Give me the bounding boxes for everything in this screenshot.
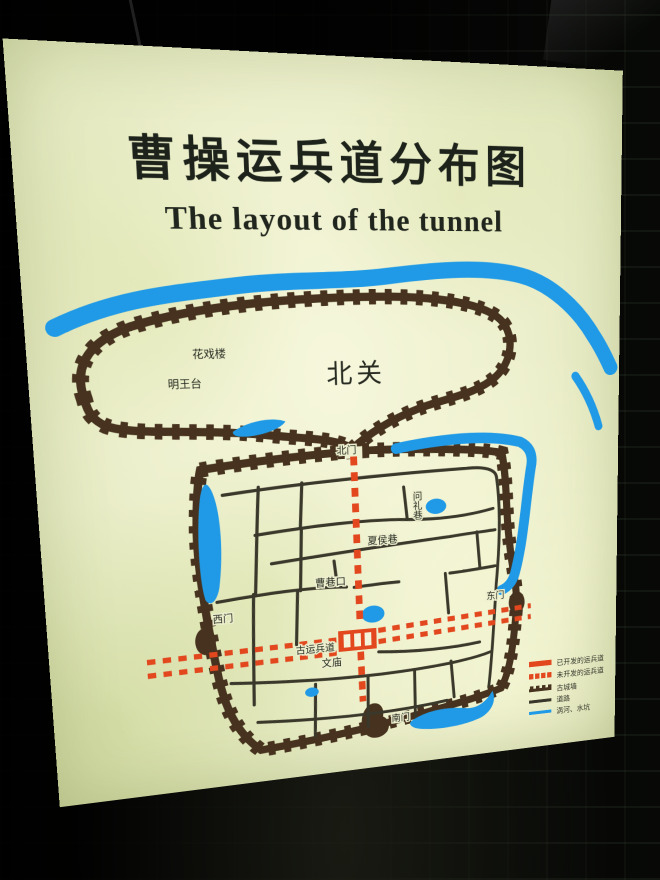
sign-title-english: The layout of the tunnel (14, 197, 621, 240)
legend-swatch-road (529, 698, 551, 704)
gate-north-label: 北门 (336, 444, 356, 457)
tunnel-layout-map: 北关 花戏楼 明王台 北门 西门 东门 南门 问礼巷 夏侯巷 曹巷口 古运兵道 … (18, 246, 621, 814)
north-gate-tower-right (362, 443, 369, 458)
gate-east-label: 东门 (486, 589, 504, 602)
legend-item-city-wall: 古城墙 (529, 681, 577, 695)
developed-tunnel-site (338, 628, 377, 652)
landmark-mingwangtai: 明王台 (167, 376, 202, 391)
photo-scene: 曹操运兵道分布图 The layout of the tunnel (0, 0, 660, 880)
legend-label: 涡河、水坑 (556, 703, 590, 715)
street-caoxiangkou-label: 曹巷口 (315, 575, 346, 589)
legend-swatch-water (529, 709, 551, 715)
center-pond (361, 605, 384, 624)
lightbox-sign: 曹操运兵道分布图 The layout of the tunnel (3, 38, 623, 807)
street-xiahouxiang-label: 夏侯巷 (367, 532, 397, 547)
landmark-wenmiao-label: 文庙 (321, 655, 342, 669)
gate-west-label: 西门 (212, 612, 233, 626)
district-label-beiguan: 北关 (326, 358, 386, 389)
legend-label: 已开发的运兵道 (557, 654, 605, 667)
street-wenlixiang-label: 问礼巷 (412, 490, 423, 520)
legend-item-undeveloped-tunnel: 未开发的运兵道 (529, 666, 604, 682)
wenli-pond (426, 498, 447, 514)
legend-swatch-developed-tunnel (529, 660, 551, 668)
sign-title-chinese: 曹操运兵道分布图 (8, 115, 622, 198)
river-branch (575, 375, 599, 427)
legend-item-water: 涡河、水坑 (529, 703, 590, 718)
legend-swatch-undeveloped-tunnel (529, 674, 533, 680)
gate-south-label: 南门 (391, 711, 410, 724)
landmark-huaxilou: 花戏楼 (192, 346, 226, 361)
legend: 已开发的运兵道 未开发的运兵道 古城墙 (529, 654, 604, 718)
legend-label: 道路 (556, 694, 570, 704)
legend-label: 古城墙 (556, 682, 577, 693)
legend-label: 未开发的运兵道 (557, 666, 605, 679)
